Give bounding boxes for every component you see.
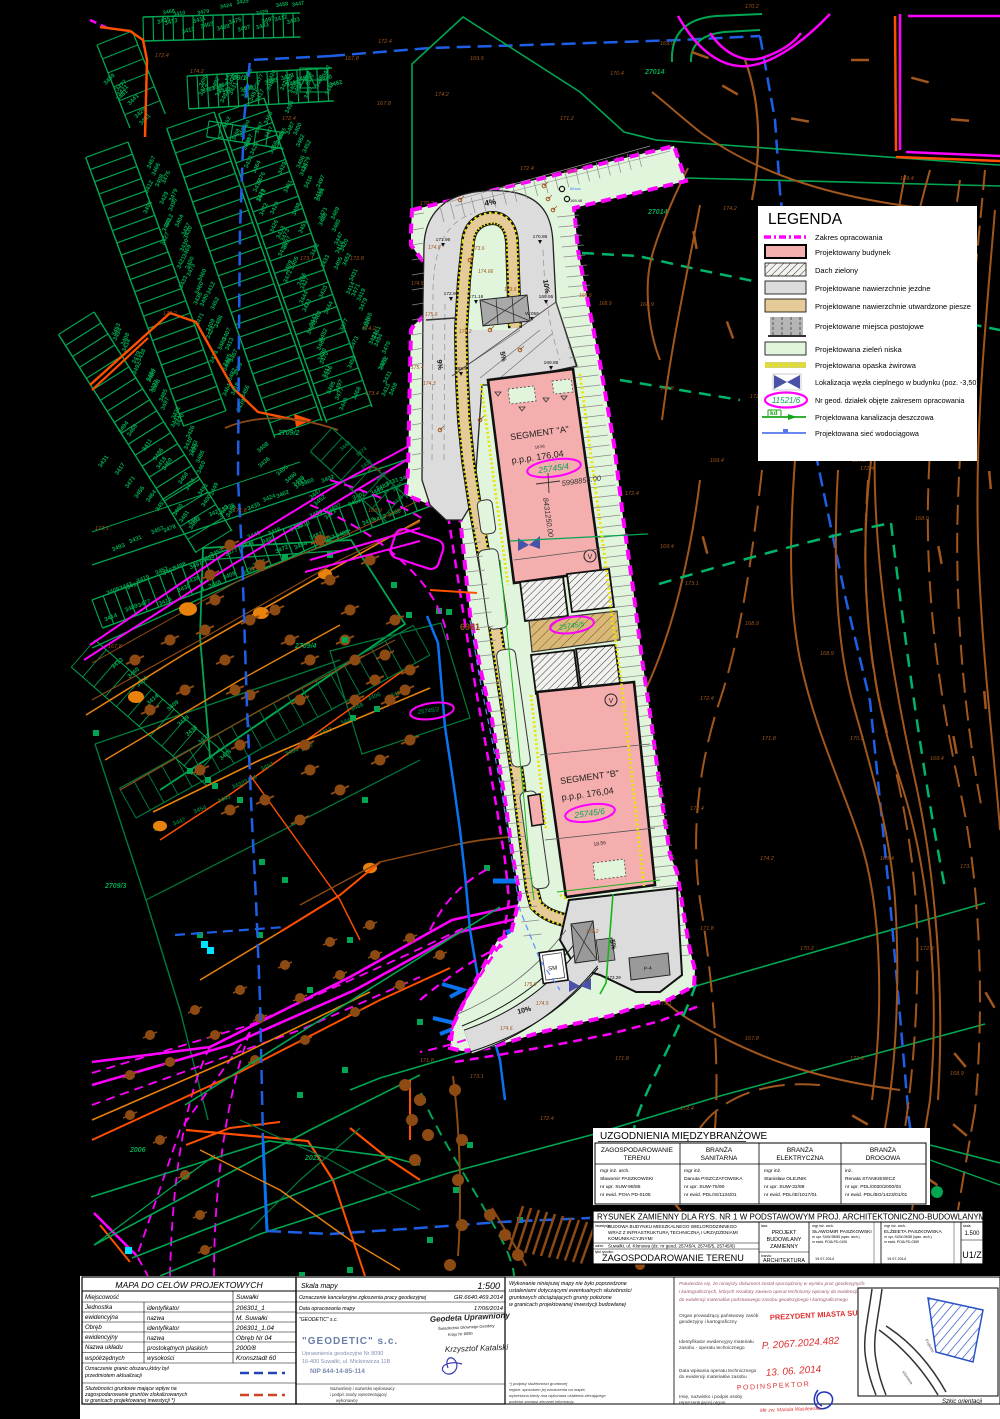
svg-text:W.xxx: W.xxx: [570, 186, 581, 191]
svg-text:V: V: [609, 698, 614, 705]
svg-text:206301_1: 206301_1: [235, 1305, 265, 1312]
svg-text:SANITARNA: SANITARNA: [701, 1155, 738, 1162]
svg-text:Organ prowadzący państwowy zas: Organ prowadzący państwowy zasób: [679, 1313, 759, 1319]
svg-text:174.2: 174.2: [723, 206, 737, 212]
svg-text:faza:: faza:: [761, 1224, 768, 1228]
svg-text:w granicach projektowanej in: w granicach projektowanej inwestycji bud…: [509, 1302, 627, 1308]
svg-text:6981: 6981: [460, 622, 480, 632]
svg-text:M. Suwałki: M. Suwałki: [236, 1315, 268, 1322]
svg-text:Projektowane nawierzchnie jezd: Projektowane nawierzchnie jezdne: [815, 284, 931, 293]
svg-text:BRANŻA: BRANŻA: [787, 1145, 814, 1154]
svg-text:2709/2: 2709/2: [277, 430, 300, 437]
svg-text:168.9: 168.9: [640, 302, 654, 308]
svg-text:ewidencyjny: ewidencyjny: [85, 1335, 119, 1341]
svg-text:174.66: 174.66: [478, 269, 494, 275]
svg-text:zasobu - operatu technicznego: zasobu - operatu technicznego: [679, 1345, 745, 1351]
svg-text:169.4: 169.4: [660, 544, 674, 550]
svg-text:174.2: 174.2: [459, 329, 472, 335]
svg-text:Projektowana opaska żwirowa: Projektowana opaska żwirowa: [815, 361, 917, 370]
svg-text:KOMUNIKACYJNYMI: KOMUNIKACYJNYMI: [608, 1236, 653, 1241]
svg-text:ewidencyjna: ewidencyjna: [85, 1315, 119, 1321]
svg-text:172.4: 172.4: [680, 1106, 694, 1112]
svg-text:NIP 844-14-85-114: NIP 844-14-85-114: [310, 1368, 365, 1375]
svg-text:nazwa: nazwa: [147, 1316, 165, 1322]
svg-text:174.2: 174.2: [190, 69, 204, 75]
svg-text:171.16: 171.16: [469, 294, 484, 300]
svg-text:171.8: 171.8: [700, 926, 715, 932]
svg-text:2000/8: 2000/8: [235, 1345, 256, 1352]
svg-text:ELEKTRYCZNA: ELEKTRYCZNA: [776, 1155, 824, 1162]
svg-text:171.96: 171.96: [436, 237, 451, 243]
svg-text:168.9: 168.9: [599, 301, 612, 307]
svg-text:171.2: 171.2: [560, 116, 574, 122]
svg-text:Projektowane miejsca postojowe: Projektowane miejsca postojowe: [815, 322, 924, 331]
svg-text:do ewidencji materiałów zasobu: do ewidencji materiałów zasobu: [679, 1374, 747, 1380]
svg-text:nr ewid. POIA PD-0105: nr ewid. POIA PD-0105: [600, 1192, 651, 1198]
svg-text:172.4: 172.4: [625, 491, 639, 497]
svg-text:Obręb Nr 04: Obręb Nr 04: [236, 1335, 272, 1342]
svg-text:175.4: 175.4: [411, 365, 424, 371]
svg-text:nr upr. SUW-32/88: nr upr. SUW-32/88: [764, 1184, 805, 1190]
svg-text:przedmiotem aktualizacji: przedmiotem aktualizacji: [84, 1373, 143, 1379]
svg-text:nr upr. PDL/0030/2000/04: nr upr. PDL/0030/2000/04: [845, 1184, 901, 1190]
svg-text:Skala mapy: Skala mapy: [301, 1283, 338, 1290]
svg-text:PROJEKT: PROJEKT: [772, 1230, 798, 1236]
svg-text:GR.6640.469.2014: GR.6640.469.2014: [454, 1295, 503, 1301]
svg-text:Potwierdza się, że niniejszy d: Potwierdza się, że niniejszy dokument zo…: [679, 1281, 865, 1287]
svg-text:169.86: 169.86: [544, 360, 559, 366]
svg-text:reprezentującej organ: reprezentującej organ: [679, 1400, 726, 1406]
svg-text:mgr inż. arch.: mgr inż. arch.: [812, 1224, 834, 1228]
svg-text:nazwa: nazwa: [147, 1336, 165, 1342]
svg-text:TERENU: TERENU: [624, 1155, 651, 1162]
svg-text:170.86: 170.86: [533, 234, 548, 240]
svg-text:1.500: 1.500: [964, 1231, 980, 1237]
svg-text:174.3: 174.3: [423, 381, 436, 387]
svg-text:19.07.2014: 19.07.2014: [815, 1257, 834, 1261]
svg-text:Oznaczenie kancelaryjne zgłosz: Oznaczenie kancelaryjne zgłoszenia pracy…: [299, 1295, 427, 1301]
svg-text:nr ewid. PDL/IS/1134/01: nr ewid. PDL/IS/1134/01: [684, 1192, 737, 1198]
svg-text:172.4: 172.4: [860, 466, 874, 472]
svg-text:mgr inż.: mgr inż.: [764, 1168, 781, 1174]
svg-text:206301_1.04: 206301_1.04: [235, 1325, 274, 1332]
svg-text:LEGENDA: LEGENDA: [768, 211, 843, 228]
svg-text:174.2: 174.2: [362, 326, 376, 332]
svg-text:2709/1: 2709/1: [224, 75, 247, 82]
svg-text:BRANŻA: BRANŻA: [870, 1145, 897, 1154]
svg-text:11521/6: 11521/6: [772, 396, 801, 405]
svg-text:gruntowych obciążających grunt: gruntowych obciążających grunty położone: [509, 1295, 612, 1301]
svg-text:1:500: 1:500: [477, 1281, 500, 1291]
svg-text:174.5: 174.5: [411, 281, 424, 287]
svg-text:172.90: 172.90: [444, 291, 459, 297]
svg-text:nr upr. SUW-09/88 (spec. arch.: nr upr. SUW-09/88 (spec. arch.): [884, 1235, 932, 1239]
svg-text:Uprawnienia geodezyjne Nr 8090: Uprawnienia geodezyjne Nr 8090: [302, 1351, 383, 1357]
svg-text:171.8: 171.8: [420, 1058, 435, 1064]
svg-text:2709/4: 2709/4: [294, 643, 317, 650]
svg-text:adres:: adres:: [595, 1244, 604, 1248]
svg-text:BUDOWA BUDYNKU MIESZKALNEGO WI: BUDOWA BUDYNKU MIESZKALNEGO WIELORODZINN…: [608, 1224, 737, 1229]
svg-text:wykonawcę: wykonawcę: [336, 1398, 358, 1403]
svg-text:geodezyjny i kartograficzny: geodezyjny i kartograficzny: [679, 1319, 737, 1325]
svg-text:167.8: 167.8: [377, 101, 392, 107]
svg-text:170.2: 170.2: [850, 736, 864, 742]
svg-text:173.4: 173.4: [365, 391, 379, 397]
svg-text:27014: 27014: [644, 69, 665, 76]
svg-text:172.4: 172.4: [520, 166, 534, 172]
svg-text:Projektowany budynek: Projektowany budynek: [815, 248, 891, 257]
svg-text:BUDOWLANY: BUDOWLANY: [767, 1237, 802, 1243]
svg-text:171.8: 171.8: [850, 1056, 865, 1062]
svg-text:169.4: 169.4: [880, 856, 894, 862]
svg-text:169.4: 169.4: [710, 458, 724, 464]
svg-text:Szkic orientacji: Szkic orientacji: [942, 1399, 983, 1405]
svg-text:Data opracowania mapy: Data opracowania mapy: [299, 1306, 355, 1312]
svg-text:172.4: 172.4: [282, 116, 296, 122]
svg-text:173.1: 173.1: [300, 256, 314, 262]
svg-text:nr ewid. POIA PD-0105: nr ewid. POIA PD-0105: [812, 1240, 847, 1244]
svg-text:nr ewid. PDL/BO/1423/01/01: nr ewid. PDL/BO/1423/01/01: [845, 1192, 908, 1198]
svg-text:19.07.2014: 19.07.2014: [887, 1257, 906, 1261]
svg-text:mgr inż. arch.: mgr inż. arch.: [884, 1224, 906, 1228]
svg-text:173.6: 173.6: [472, 246, 485, 252]
svg-text:170.2: 170.2: [163, 311, 177, 317]
svg-text:169.9: 169.9: [660, 41, 674, 47]
svg-text:Miejscowość: Miejscowość: [85, 1295, 119, 1301]
svg-text:175.8: 175.8: [524, 982, 537, 988]
svg-text:Oznaczenie granic obszaru,któr: Oznaczenie granic obszaru,który był: [85, 1366, 169, 1372]
svg-text:168.9: 168.9: [820, 651, 834, 657]
svg-text:172.4: 172.4: [378, 39, 392, 45]
svg-text:"GEODETIC" s.c.: "GEODETIC" s.c.: [302, 1336, 398, 1347]
svg-text:Projektowana sieć wodociągowa: Projektowana sieć wodociągowa: [815, 429, 919, 438]
svg-text:173.6: 173.6: [504, 287, 517, 293]
svg-text:172.4: 172.4: [690, 806, 704, 812]
svg-text:MAPA DO CELÓW PROJEKTOWYCH: MAPA DO CELÓW PROJEKTOWYCH: [115, 1280, 263, 1290]
svg-text:173.1: 173.1: [470, 1074, 484, 1080]
svg-text:ZAGOSPODAROWANIE: ZAGOSPODAROWANIE: [601, 1147, 674, 1154]
svg-text:Lokalizacja węzła cieplnego w: Lokalizacja węzła cieplnego w budynku (p…: [815, 378, 979, 387]
svg-text:Zakres opracowania: Zakres opracowania: [815, 233, 883, 242]
svg-text:wysokości: wysokości: [147, 1356, 175, 1362]
svg-text:nr ewid. PDL/IE/1017/01: nr ewid. PDL/IE/1017/01: [764, 1192, 817, 1198]
svg-text:Stanisław OLEJNIK: Stanisław OLEJNIK: [764, 1176, 807, 1182]
svg-text:175.6: 175.6: [425, 312, 438, 318]
svg-text:DROGOWA: DROGOWA: [866, 1155, 901, 1162]
svg-text:Wykonanie niniejszej mapy nie: Wykonanie niniejszej mapy nie było poprz…: [509, 1281, 627, 1287]
svg-text:V: V: [588, 554, 593, 561]
svg-text:172.4: 172.4: [155, 53, 169, 59]
svg-text:nr upr. SUW-98/85 (spec. arch.: nr upr. SUW-98/85 (spec. arch.): [812, 1235, 860, 1239]
svg-text:W:056: W:056: [525, 311, 539, 317]
svg-text:167.8: 167.8: [345, 56, 360, 62]
svg-text:171.8: 171.8: [233, 508, 248, 514]
svg-text:172.8: 172.8: [350, 256, 365, 262]
svg-text:skala:: skala:: [963, 1224, 971, 1228]
svg-text:nr upr. SUW-98/85: nr upr. SUW-98/85: [600, 1184, 641, 1190]
svg-text:167.8: 167.8: [108, 644, 123, 650]
svg-text:Projektowana zieleń niska: Projektowana zieleń niska: [815, 345, 903, 354]
svg-text:ARCHITEKTURA: ARCHITEKTURA: [763, 1258, 805, 1264]
svg-text:173.1: 173.1: [685, 581, 699, 587]
svg-text:169.4: 169.4: [930, 756, 944, 762]
svg-text:Nr geod. działek objęte zakres: Nr geod. działek objęte zakresem opracow…: [815, 396, 964, 405]
svg-text:prostokątnych płaskich: prostokątnych płaskich: [146, 1346, 208, 1352]
svg-text:168.9: 168.9: [950, 1071, 964, 1077]
svg-text:współrzędnych: współrzędnych: [85, 1356, 125, 1362]
svg-text:173.1: 173.1: [960, 864, 974, 870]
svg-text:171.8: 171.8: [762, 736, 777, 742]
svg-text:170.4: 170.4: [610, 71, 624, 77]
svg-text:174.2: 174.2: [435, 92, 449, 98]
svg-text:ELŻBIETA PASZKOWSKA: ELŻBIETA PASZKOWSKA: [884, 1228, 942, 1235]
svg-text:identyfikator: identyfikator: [147, 1326, 180, 1332]
svg-text:Identyfikator ewidencyjny mate: Identyfikator ewidencyjny materiału: [679, 1339, 754, 1345]
svg-text:168.9: 168.9: [745, 621, 759, 627]
svg-text:mgr inż.: mgr inż.: [684, 1168, 701, 1174]
svg-text:ustaleniami dotyczącymi ewentu: ustaleniami dotyczącymi ewentualnych słu…: [509, 1288, 632, 1294]
svg-text:P-4: P-4: [644, 966, 653, 973]
svg-text:172.4: 172.4: [920, 946, 934, 952]
svg-text:w granicach projektowanej in: w granicach projektowanej inwestycji *): [85, 1398, 175, 1404]
svg-text:inż.: inż.: [845, 1168, 853, 1174]
svg-text:SM: SM: [548, 965, 558, 972]
svg-text:*) podpisy służebności grunto: *) podpisy służebności gruntowej: [509, 1381, 567, 1386]
svg-text:2006: 2006: [129, 1147, 146, 1154]
svg-text:173.1: 173.1: [95, 526, 109, 532]
svg-text:i podpis osoby reprezentując: i podpis osoby reprezentującej: [330, 1392, 388, 1397]
svg-text:Nazwa układu: Nazwa układu: [85, 1345, 123, 1351]
svg-text:174.5: 174.5: [536, 1001, 549, 1007]
svg-text:Suwałki, ul. Klonowa (dz. nr g: Suwałki, ul. Klonowa (dz. nr geod. 25745…: [608, 1244, 735, 1249]
svg-text:U1/Z: U1/Z: [962, 1250, 982, 1260]
svg-text:BRANŻA: BRANŻA: [706, 1145, 733, 1154]
svg-text:27014: 27014: [647, 209, 668, 216]
svg-text:168.9: 168.9: [368, 508, 382, 514]
svg-text:174.6: 174.6: [500, 1026, 513, 1032]
svg-text:nr ewid. POIA PD-0359: nr ewid. POIA PD-0359: [884, 1240, 919, 1244]
svg-text:Kronsztadt 60: Kronsztadt 60: [236, 1355, 276, 1362]
svg-text:podmiot zamiast zlecanej in: podmiot zamiast zlecanej informacją.: [508, 1399, 575, 1404]
svg-text:172.4: 172.4: [700, 696, 714, 702]
svg-text:mgr inż. arch.: mgr inż. arch.: [600, 1168, 630, 1174]
svg-text:Renata STANKIEWICZ: Renata STANKIEWICZ: [845, 1176, 895, 1182]
svg-text:nr upr. SUW-75/90: nr upr. SUW-75/90: [684, 1184, 725, 1190]
svg-text:170.2: 170.2: [745, 4, 759, 10]
svg-text:Nazwa/imię i nazwisko wykonawc: Nazwa/imię i nazwisko wykonawcy: [330, 1386, 396, 1391]
svg-text:Obręb: Obręb: [85, 1325, 102, 1331]
svg-text:16-400 Suwałki, ul. Mickiewicz: 16-400 Suwałki, ul. Mickiewicza 11B: [302, 1359, 391, 1365]
svg-text:identyfikator: identyfikator: [147, 1306, 180, 1312]
svg-text:172.4: 172.4: [540, 1116, 554, 1122]
svg-text:kd: kd: [770, 410, 778, 417]
svg-text:UZGODNIENIA MIĘDZYBRANŻOWE: UZGODNIENIA MIĘDZYBRANŻOWE: [600, 1129, 768, 1142]
svg-text:WRAZ Z INFRASTRUKTURĄ TECHNICZ: WRAZ Z INFRASTRUKTURĄ TECHNICZNĄ I URZĄD…: [608, 1230, 738, 1235]
svg-text:Sławomir PASZKOWSKI: Sławomir PASZKOWSKI: [600, 1176, 653, 1182]
svg-text:i kartograficznych, których re: i kartograficznych, których rezultaty za…: [679, 1289, 858, 1295]
svg-text:Projektowana kanalizacja deszc: Projektowana kanalizacja deszczowa: [815, 413, 934, 422]
svg-text:"GEODETIC" s.c.: "GEODETIC" s.c.: [299, 1317, 338, 1323]
svg-text:2709/3: 2709/3: [104, 883, 127, 890]
svg-text:174.6: 174.6: [428, 245, 441, 251]
svg-text:169.4: 169.4: [900, 176, 914, 182]
svg-text:167.8: 167.8: [660, 386, 675, 392]
svg-text:do ewidencji materiałów państw: do ewidencji materiałów państwowego zaso…: [679, 1297, 848, 1303]
svg-text:170.2: 170.2: [368, 467, 382, 473]
svg-text:Projektowane nawierzchnie utwa: Projektowane nawierzchnie utwardzone pie…: [815, 302, 971, 311]
svg-text:174.2: 174.2: [760, 856, 774, 862]
svg-text:ZAGOSPODAROWANIE TERENU: ZAGOSPODAROWANIE TERENU: [602, 1253, 744, 1263]
svg-text:168.7: 168.7: [565, 169, 578, 175]
svg-text:Danuta PISZCZATOWSKA: Danuta PISZCZATOWSKA: [684, 1176, 743, 1182]
svg-text:wykreślono,kiedy ona wykonana: wykreślono,kiedy ona wykonana ustalenia …: [509, 1393, 607, 1398]
svg-text:RYSUNEK ZAMIENNY DLA RYS. NR 1: RYSUNEK ZAMIENNY DLA RYS. NR 1 W PODSTAW…: [597, 1213, 986, 1222]
svg-text:Suwałki: Suwałki: [236, 1294, 259, 1301]
svg-text:169.46: 169.46: [570, 198, 583, 203]
svg-text:registr. sposobem jej oznacze: registr. sposobem jej oznaczenia na mapi…: [509, 1387, 586, 1392]
svg-text:Imię, nazwisko i podpis osoby: Imię, nazwisko i podpis osoby: [679, 1394, 743, 1400]
svg-text:ZAMIENNY: ZAMIENNY: [770, 1244, 798, 1250]
svg-text:169.6: 169.6: [470, 56, 485, 62]
svg-text:172.2: 172.2: [586, 929, 599, 935]
svg-text:168.9: 168.9: [579, 293, 592, 299]
svg-text:167.8: 167.8: [745, 1036, 760, 1042]
svg-text:Data wpisania operatu technicz: Data wpisania operatu technicznego: [679, 1368, 757, 1374]
svg-text:2023: 2023: [304, 1155, 321, 1162]
svg-text:171.8: 171.8: [615, 1056, 630, 1062]
svg-text:Jednostka: Jednostka: [84, 1305, 113, 1311]
svg-text:173.29: 173.29: [607, 975, 621, 980]
svg-text:Dach zielony: Dach zielony: [815, 266, 858, 275]
svg-text:169.55: 169.55: [539, 294, 554, 300]
svg-text:168.9: 168.9: [915, 516, 929, 522]
svg-text:170.2: 170.2: [800, 946, 814, 952]
